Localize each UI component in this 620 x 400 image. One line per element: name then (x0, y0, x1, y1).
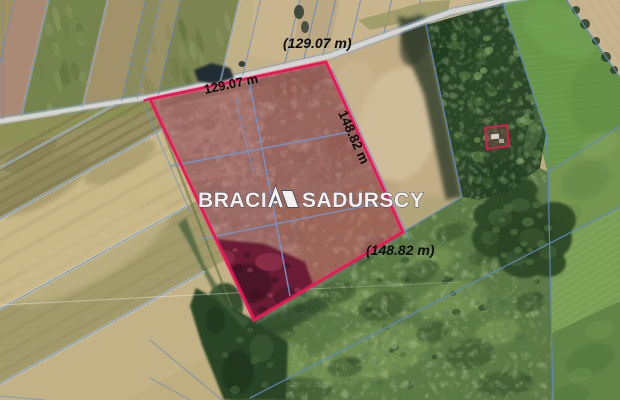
svg-text:(148.82 m): (148.82 m) (366, 242, 435, 258)
svg-text:SADURSCY: SADURSCY (302, 189, 424, 212)
svg-text:(129.07 m): (129.07 m) (283, 35, 352, 51)
